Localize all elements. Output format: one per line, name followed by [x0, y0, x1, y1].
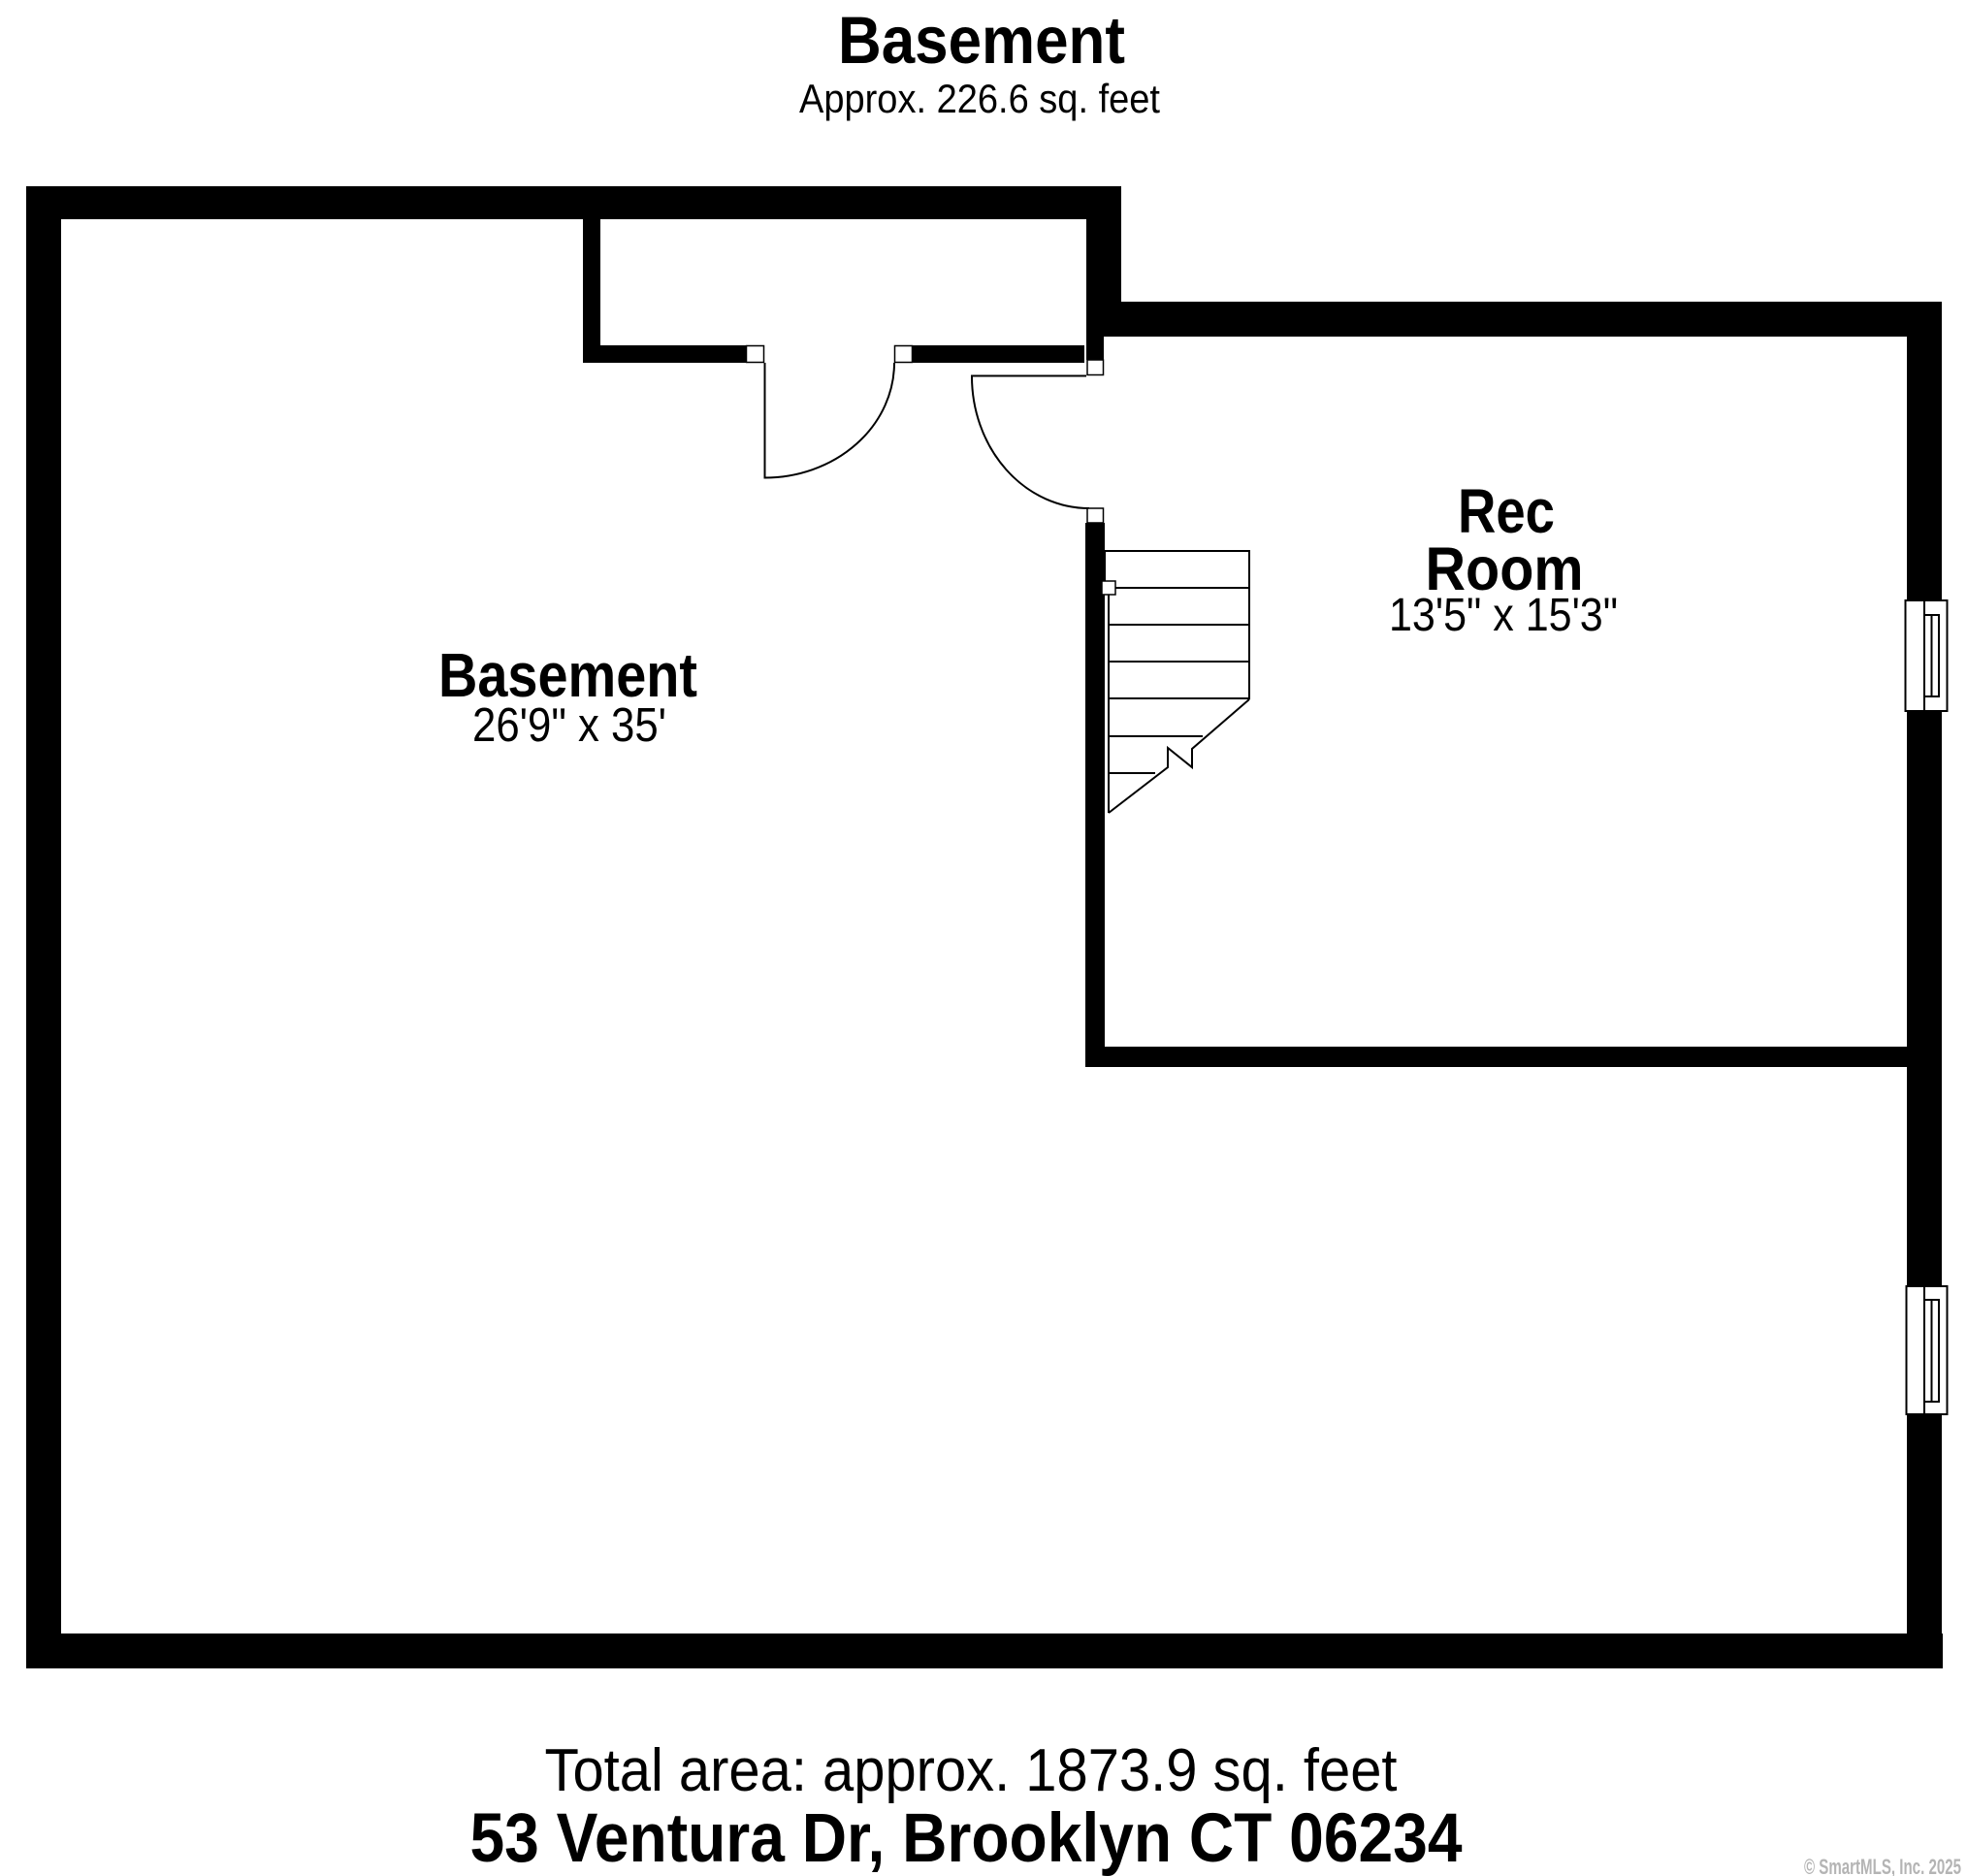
svg-text:26'9" x 35': 26'9" x 35': [472, 699, 666, 752]
svg-text:13'5" x 15'3": 13'5" x 15'3": [1389, 590, 1618, 641]
svg-text:53 Ventura Dr, Brooklyn CT 062: 53 Ventura Dr, Brooklyn CT 06234: [470, 1800, 1463, 1876]
svg-text:Approx. 226.6 sq. feet: Approx. 226.6 sq. feet: [799, 76, 1160, 121]
svg-text:Basement: Basement: [838, 3, 1125, 78]
svg-text:Total area: approx. 1873.9 sq.: Total area: approx. 1873.9 sq. feet: [545, 1737, 1398, 1804]
svg-text:© SmartMLS, Inc. 2025: © SmartMLS, Inc. 2025: [1804, 1855, 1961, 1876]
